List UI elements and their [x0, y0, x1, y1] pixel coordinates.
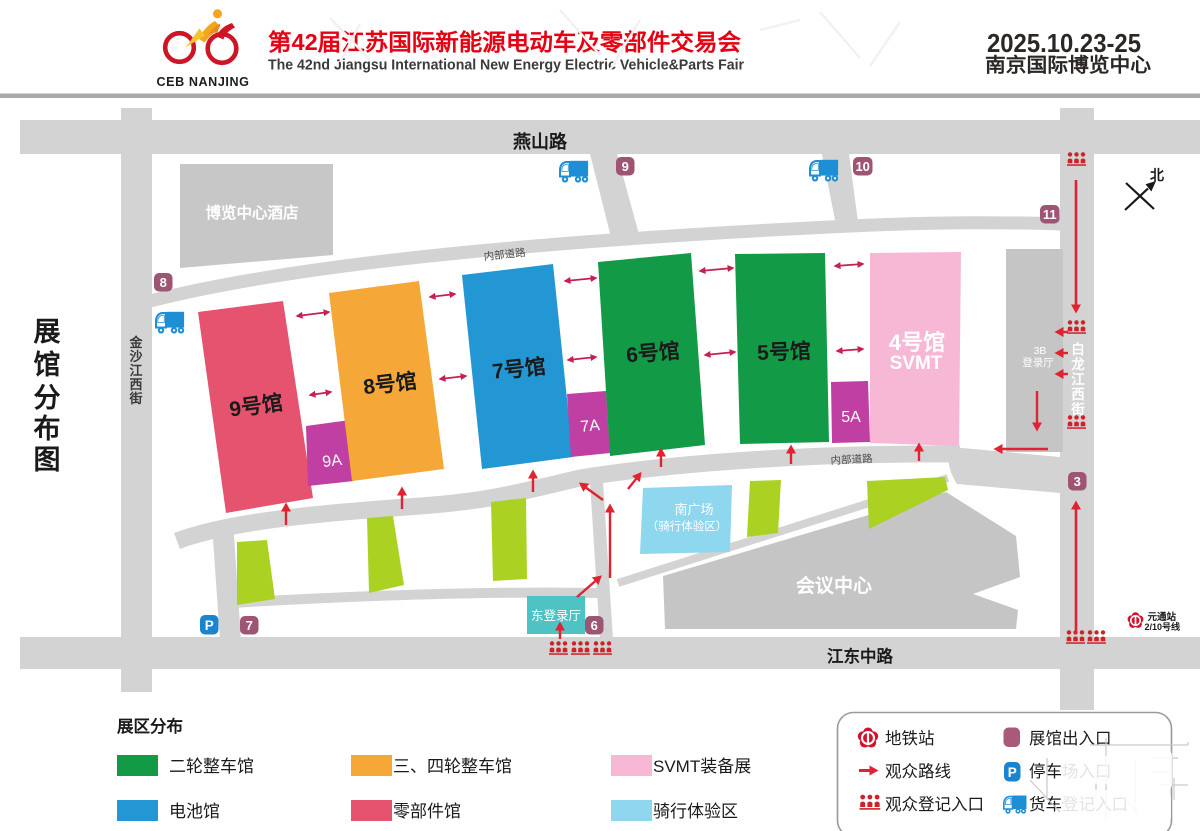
- svg-text:布: 布: [34, 414, 61, 444]
- svg-text:3B: 3B: [1034, 345, 1047, 357]
- svg-text:沙: 沙: [129, 349, 142, 364]
- svg-text:5号馆: 5号馆: [757, 339, 811, 365]
- svg-text:2/10号线: 2/10号线: [1145, 621, 1181, 632]
- svg-text:9: 9: [622, 159, 629, 174]
- svg-text:馆: 馆: [34, 349, 61, 380]
- svg-text:北: 北: [1150, 167, 1164, 183]
- svg-text:零部件馆: 零部件馆: [393, 802, 461, 821]
- svg-text:6号馆: 6号馆: [625, 339, 681, 368]
- svg-text:地铁站: 地铁站: [885, 729, 935, 748]
- svg-text:6: 6: [591, 618, 598, 633]
- svg-text:白: 白: [1071, 341, 1085, 357]
- svg-text:内部道路: 内部道路: [830, 452, 873, 467]
- svg-text:观众路线: 观众路线: [885, 762, 951, 781]
- svg-text:会议中心: 会议中心: [796, 574, 872, 597]
- svg-text:（骑行体验区）: （骑行体验区）: [647, 519, 728, 533]
- svg-text:展: 展: [34, 317, 61, 347]
- svg-text:二轮整车馆: 二轮整车馆: [169, 757, 254, 776]
- svg-text:图: 图: [34, 445, 61, 475]
- svg-text:CEB NANJING: CEB NANJING: [157, 74, 250, 89]
- svg-text:展区分布: 展区分布: [117, 716, 183, 736]
- svg-text:观众登记入口: 观众登记入口: [885, 795, 984, 814]
- svg-text:P: P: [1008, 765, 1017, 780]
- svg-text:南广场: 南广场: [674, 502, 713, 517]
- svg-text:街: 街: [128, 391, 142, 406]
- svg-text:10: 10: [855, 159, 869, 174]
- svg-text:骑行体验区: 骑行体验区: [653, 802, 738, 821]
- svg-text:西: 西: [129, 377, 142, 392]
- svg-text:街: 街: [1070, 401, 1085, 417]
- svg-text:2025.10.23-25: 2025.10.23-25: [987, 28, 1141, 58]
- svg-text:7A: 7A: [580, 417, 601, 436]
- svg-text:电池馆: 电池馆: [169, 802, 220, 821]
- svg-text:江: 江: [1071, 371, 1085, 387]
- svg-text:7: 7: [246, 618, 253, 633]
- svg-text:分: 分: [34, 383, 61, 413]
- svg-text:龙: 龙: [1070, 356, 1085, 372]
- svg-text:三、四轮整车馆: 三、四轮整车馆: [393, 757, 512, 776]
- svg-text:登录厅: 登录厅: [1022, 356, 1054, 369]
- svg-text:P: P: [205, 618, 214, 633]
- svg-text:金: 金: [128, 335, 143, 350]
- svg-text:南京国际博览中心: 南京国际博览中心: [985, 54, 1152, 77]
- svg-text:江东中路: 江东中路: [827, 646, 894, 666]
- svg-text:SVMT: SVMT: [890, 353, 943, 374]
- svg-text:东登录厅: 东登录厅: [531, 608, 581, 623]
- svg-text:博览中心酒店: 博览中心酒店: [205, 203, 298, 222]
- svg-text:9A: 9A: [321, 452, 343, 471]
- svg-text:8: 8: [160, 275, 167, 290]
- svg-text:11: 11: [1043, 207, 1057, 222]
- svg-text:3: 3: [1074, 474, 1081, 489]
- svg-text:4号馆: 4号馆: [889, 330, 945, 355]
- svg-text:The 42nd Jiangsu International: The 42nd Jiangsu International New Energ…: [268, 57, 744, 74]
- svg-text:西: 西: [1071, 387, 1085, 402]
- svg-text:第42届江苏国际新能源电动车及零部件交易会: 第42届江苏国际新能源电动车及零部件交易会: [268, 29, 741, 55]
- svg-text:5A: 5A: [841, 409, 861, 426]
- svg-text:SVMT装备展: SVMT装备展: [653, 757, 751, 776]
- svg-text:燕山路: 燕山路: [513, 131, 568, 152]
- svg-text:江: 江: [129, 363, 142, 378]
